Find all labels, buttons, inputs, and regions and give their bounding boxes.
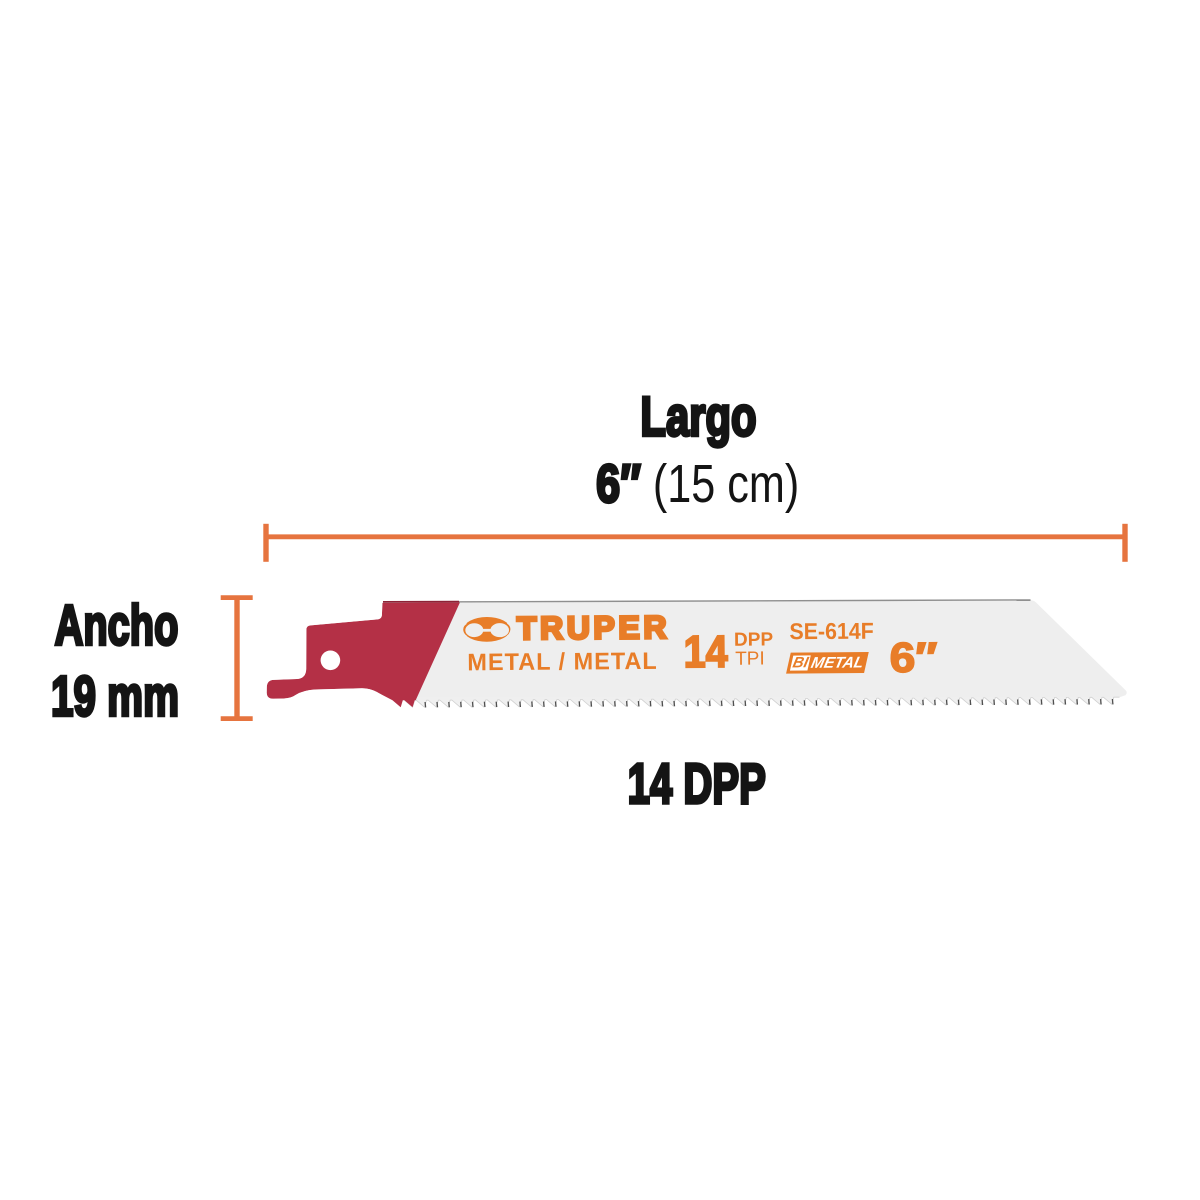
svg-text:Ancho: Ancho — [55, 595, 179, 658]
svg-text:SE-614F: SE-614F — [789, 618, 874, 645]
svg-text:TRUPER: TRUPER — [517, 609, 670, 646]
svg-text:DPP: DPP — [734, 629, 774, 650]
svg-text:6″ (15 cm): 6″ (15 cm) — [596, 454, 799, 514]
svg-text:19 mm: 19 mm — [51, 665, 179, 728]
svg-text:Largo: Largo — [640, 386, 756, 448]
svg-text:TPI: TPI — [735, 648, 765, 669]
svg-text:14 DPP: 14 DPP — [628, 752, 766, 816]
svg-text:14: 14 — [683, 626, 728, 676]
svg-text:METAL: METAL — [809, 655, 865, 672]
svg-text:6″: 6″ — [889, 635, 937, 682]
svg-text:METAL / METAL: METAL / METAL — [467, 648, 658, 677]
